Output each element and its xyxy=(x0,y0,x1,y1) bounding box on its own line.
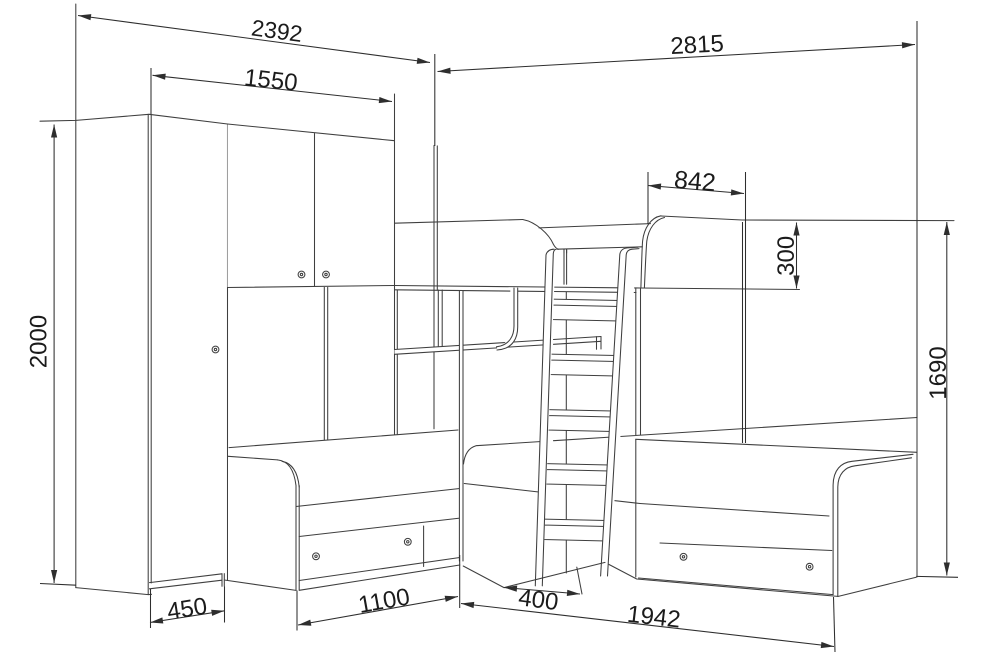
svg-text:300: 300 xyxy=(773,236,800,276)
svg-text:1550: 1550 xyxy=(243,64,299,97)
svg-text:1690: 1690 xyxy=(925,346,952,399)
svg-text:2392: 2392 xyxy=(250,14,304,47)
svg-text:1942: 1942 xyxy=(626,601,682,634)
svg-text:842: 842 xyxy=(673,166,717,197)
svg-text:450: 450 xyxy=(165,593,209,626)
svg-text:2000: 2000 xyxy=(26,315,53,368)
svg-text:2815: 2815 xyxy=(670,30,725,60)
svg-text:1100: 1100 xyxy=(356,583,412,619)
svg-text:400: 400 xyxy=(517,584,560,616)
